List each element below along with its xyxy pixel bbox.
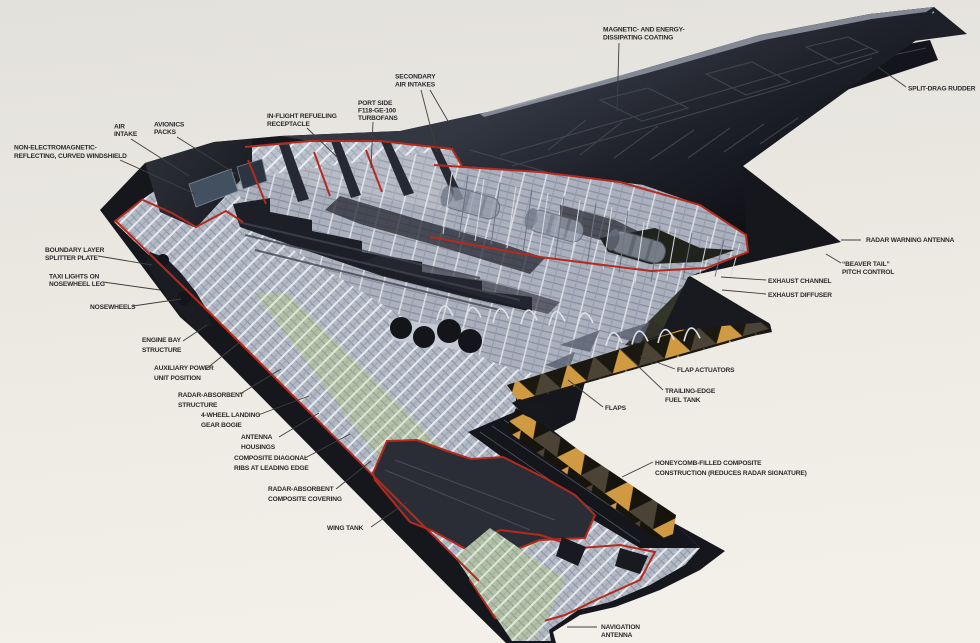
svg-text:4-WHEEL LANDING: 4-WHEEL LANDING: [201, 412, 260, 419]
svg-text:TURBOFANS: TURBOFANS: [358, 115, 398, 122]
svg-text:AIR: AIR: [114, 124, 125, 131]
svg-text:COMPOSITE COVERING: COMPOSITE COVERING: [268, 496, 342, 503]
svg-text:NON-ELECTROMAGNETIC-: NON-ELECTROMAGNETIC-: [14, 145, 97, 152]
svg-text:PORT SIDE: PORT SIDE: [358, 100, 393, 107]
svg-text:NOSEWHEELS: NOSEWHEELS: [90, 304, 136, 311]
svg-text:RECEPTACLE: RECEPTACLE: [267, 121, 310, 128]
svg-text:GEAR BOGIE: GEAR BOGIE: [201, 422, 242, 429]
svg-text:RADAR WARNING ANTENNA: RADAR WARNING ANTENNA: [866, 237, 955, 244]
svg-text:FLAP ACTUATORS: FLAP ACTUATORS: [677, 367, 735, 374]
svg-text:ENGINE BAY: ENGINE BAY: [142, 337, 182, 344]
svg-text:RADAR-ABSORBENT: RADAR-ABSORBENT: [268, 486, 334, 493]
svg-text:AUXILIARY POWER: AUXILIARY POWER: [154, 365, 214, 372]
svg-text:EXHAUST DIFFUSER: EXHAUST DIFFUSER: [768, 292, 832, 299]
svg-text:WING TANK: WING TANK: [327, 525, 364, 532]
svg-text:REFLECTING, CURVED WINDSHIELD: REFLECTING, CURVED WINDSHIELD: [14, 153, 127, 160]
svg-text:SECONDARY: SECONDARY: [395, 74, 436, 81]
svg-text:FLAPS: FLAPS: [605, 405, 627, 412]
svg-text:F118-GE-100: F118-GE-100: [358, 108, 396, 115]
svg-text:NOSEWHEEL LEG: NOSEWHEEL LEG: [49, 281, 105, 288]
svg-text:HONEYCOMB-FILLED COMPOSITE: HONEYCOMB-FILLED COMPOSITE: [655, 460, 762, 467]
svg-text:HOUSINGS: HOUSINGS: [241, 444, 276, 451]
svg-text:MAGNETIC- AND ENERGY-: MAGNETIC- AND ENERGY-: [603, 27, 685, 34]
svg-text:EXHAUST CHANNEL: EXHAUST CHANNEL: [768, 278, 831, 285]
svg-text:TRAILING-EDGE: TRAILING-EDGE: [665, 388, 716, 395]
svg-text:IN-FLIGHT REFUELING: IN-FLIGHT REFUELING: [267, 113, 337, 120]
svg-text:RADAR-ABSORBENT: RADAR-ABSORBENT: [178, 392, 244, 399]
svg-text:COMPOSITE DIAGONAL: COMPOSITE DIAGONAL: [234, 455, 308, 462]
svg-text:INTAKE: INTAKE: [114, 131, 138, 138]
svg-text:BOUNDARY LAYER: BOUNDARY LAYER: [45, 247, 105, 254]
svg-text:AVIONICS: AVIONICS: [154, 122, 185, 129]
svg-text:STRUCTURE: STRUCTURE: [142, 347, 182, 354]
svg-text:DISSIPATING COATING: DISSIPATING COATING: [603, 35, 673, 42]
svg-text:“BEAVER TAIL”: “BEAVER TAIL”: [842, 261, 890, 268]
svg-text:ANTENNA: ANTENNA: [241, 434, 273, 441]
svg-text:FUEL TANK: FUEL TANK: [665, 397, 701, 404]
svg-text:CONSTRUCTION (REDUCES RADAR SI: CONSTRUCTION (REDUCES RADAR SIGNATURE): [655, 470, 807, 477]
svg-text:UNIT POSITION: UNIT POSITION: [154, 375, 201, 382]
svg-text:PITCH CONTROL: PITCH CONTROL: [842, 269, 894, 276]
svg-text:PACKS: PACKS: [154, 129, 177, 136]
svg-text:NAVIGATION: NAVIGATION: [601, 624, 640, 631]
svg-text:RIBS AT LEADING EDGE: RIBS AT LEADING EDGE: [234, 465, 309, 472]
svg-text:SPLIT-DRAG RUDDER: SPLIT-DRAG RUDDER: [908, 86, 976, 93]
svg-text:AIR INTAKES: AIR INTAKES: [395, 82, 436, 89]
svg-text:ANTENNA: ANTENNA: [601, 632, 633, 639]
svg-text:TAXI LIGHTS ON: TAXI LIGHTS ON: [49, 274, 100, 281]
svg-text:STRUCTURE: STRUCTURE: [178, 402, 218, 409]
svg-text:SPLITTER PLATE: SPLITTER PLATE: [45, 255, 98, 262]
